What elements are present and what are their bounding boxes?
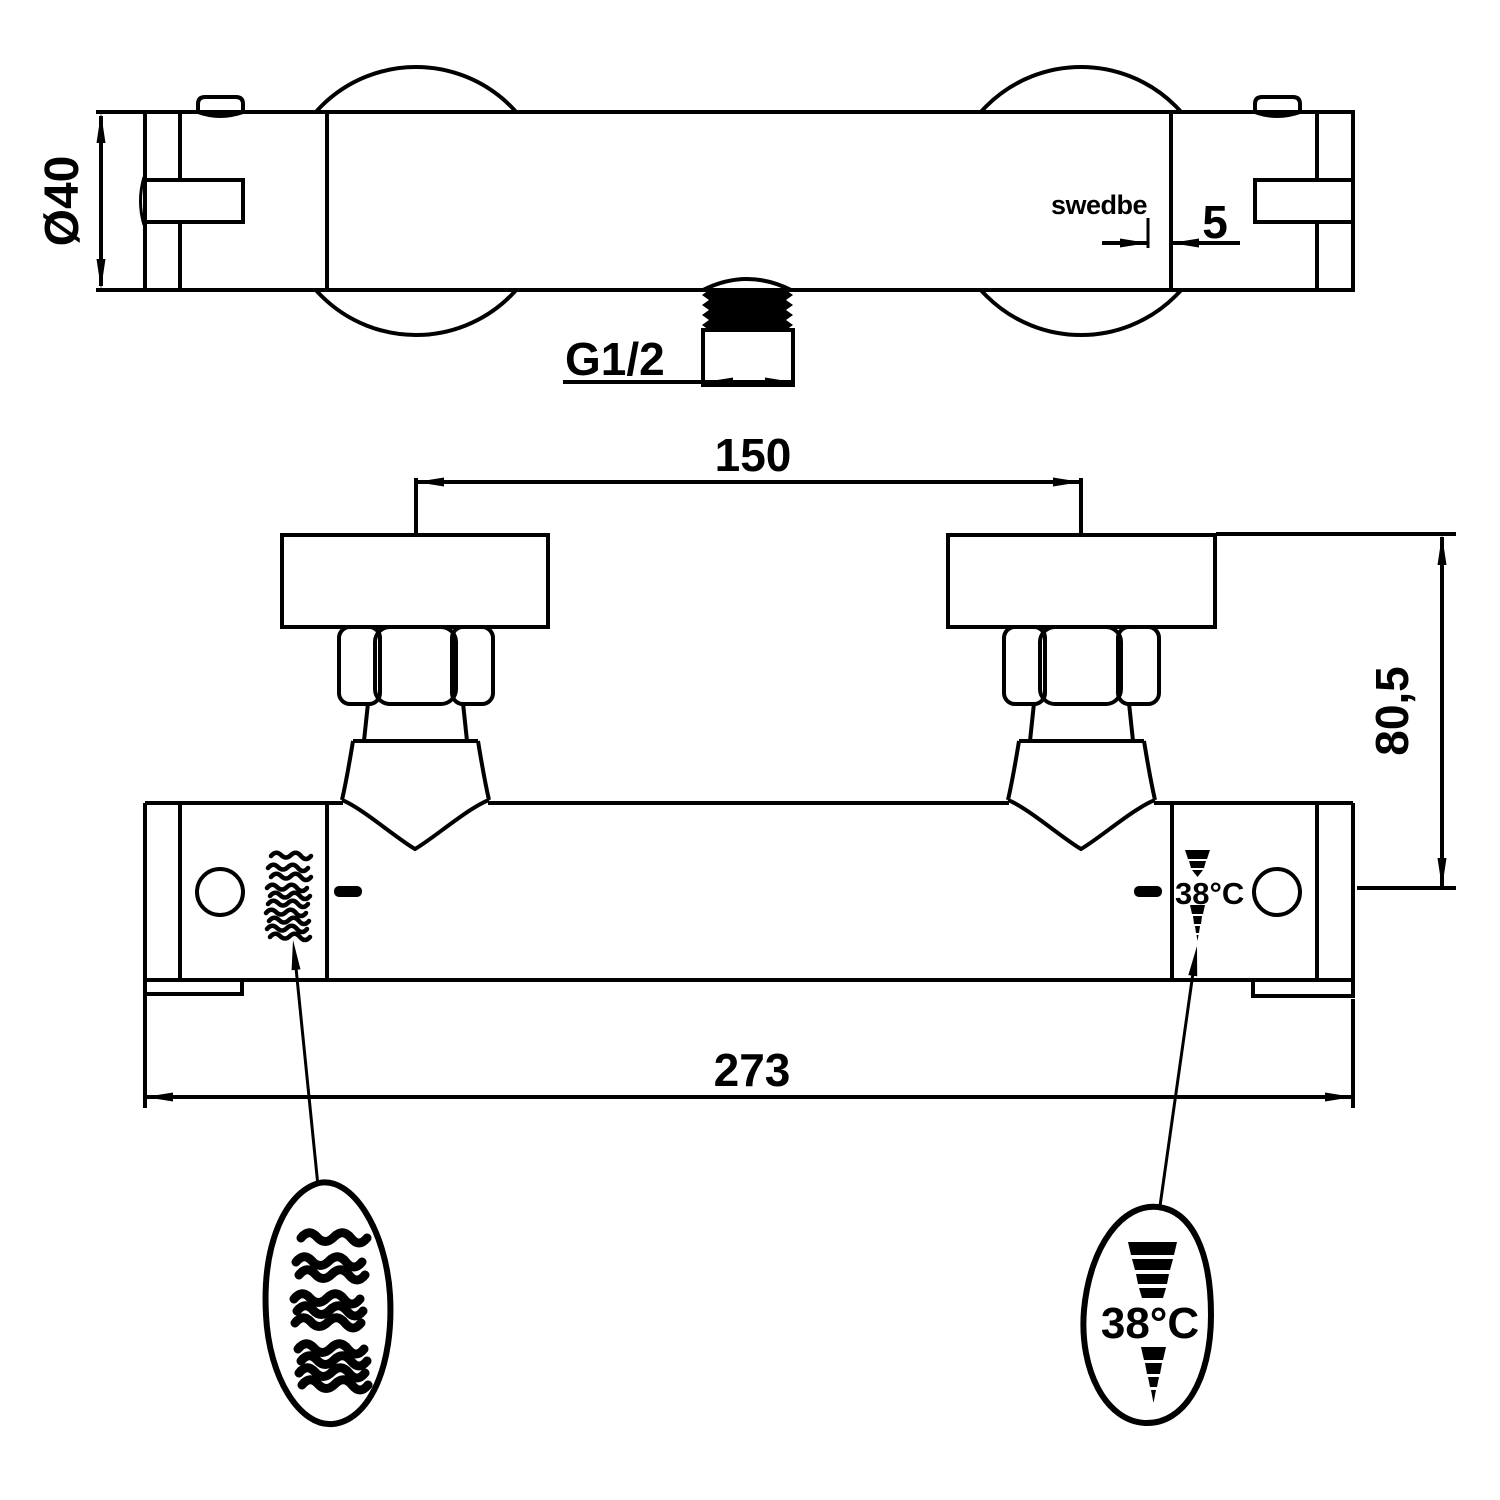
shower-mixer-drawing: 38°C Ø40 swedbe 5 G1/2 150 xyxy=(0,0,1500,1500)
left-foot xyxy=(145,980,242,994)
front-view: 38°C xyxy=(145,535,1353,996)
thread-collar xyxy=(703,330,793,385)
left-tab xyxy=(198,97,243,112)
right-knob-circle xyxy=(1254,869,1300,915)
left-knob-circle xyxy=(197,869,243,915)
technical-drawing-page: 38°C Ø40 swedbe 5 G1/2 150 xyxy=(0,0,1500,1500)
brand-logo-text: swedbe xyxy=(1051,190,1148,220)
brand-offset-label: 5 xyxy=(1202,196,1228,248)
left-handle-top xyxy=(145,180,243,222)
left-inlet-neck xyxy=(342,703,489,849)
temp-body-label: 38°C xyxy=(1175,876,1244,911)
leader-line xyxy=(1160,973,1193,1206)
thread-label: G1/2 xyxy=(565,333,665,385)
leader-line xyxy=(296,968,318,1186)
left-hex-nut xyxy=(339,627,493,704)
right-foot xyxy=(1253,980,1353,996)
temp-balloon-label: 38°C xyxy=(1101,1299,1199,1348)
thread-stub xyxy=(702,290,793,330)
dim-overall-length: 273 xyxy=(145,996,1353,1108)
temperature-detail-balloon: 38°C xyxy=(1083,946,1211,1423)
leader-arrowhead xyxy=(1188,946,1197,976)
dim-port-spacing: 150 xyxy=(416,429,1081,534)
body-front-view xyxy=(145,803,1353,980)
leader-arrowhead xyxy=(292,940,301,970)
right-tab xyxy=(1255,97,1300,112)
temperature-symbol: 38°C xyxy=(1175,850,1244,941)
right-index-dash xyxy=(1134,886,1162,897)
left-index-dash xyxy=(334,886,362,897)
right-wall-plate xyxy=(948,535,1215,627)
diameter-label: Ø40 xyxy=(36,156,89,247)
overall-length-label: 273 xyxy=(714,1044,791,1096)
right-inlet-neck xyxy=(1008,703,1155,849)
wall-height-label: 80,5 xyxy=(1366,666,1418,756)
right-hex-nut xyxy=(1004,627,1159,704)
right-saddle-curve xyxy=(1008,800,1155,849)
dim-diameter: Ø40 xyxy=(36,112,146,290)
hot-water-symbol xyxy=(266,853,311,940)
left-wall-plate xyxy=(282,535,548,627)
top-view xyxy=(141,67,1354,385)
hot-water-detail-balloon xyxy=(266,940,391,1424)
port-spacing-label: 150 xyxy=(715,429,792,481)
right-handle-top xyxy=(1255,180,1353,222)
left-saddle-curve xyxy=(342,800,489,849)
dim-wall-height: 80,5 xyxy=(1216,534,1456,888)
